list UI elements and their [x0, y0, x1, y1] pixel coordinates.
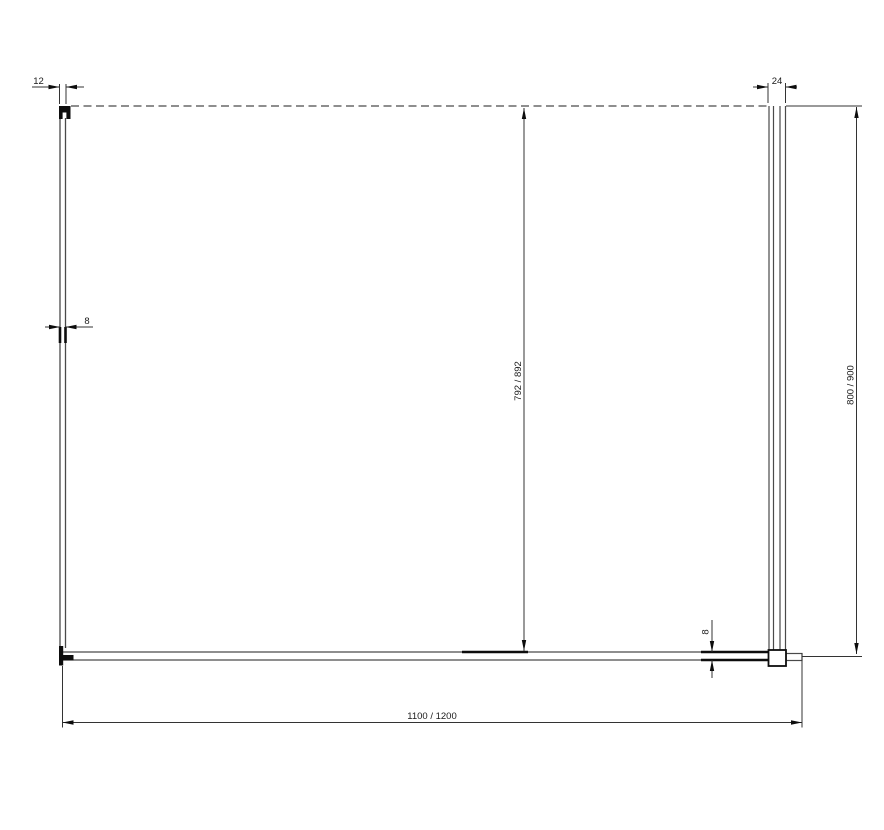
dim-glass-thickness-left-8: 8	[45, 316, 93, 329]
arrow-down-icon	[854, 643, 858, 654]
foot-block	[769, 650, 787, 666]
dim-label-24: 24	[772, 76, 783, 87]
arrow-left-icon	[66, 325, 77, 329]
dim-label-1100-1200: 1100 / 1200	[407, 711, 456, 722]
dim-overall-width-1100-1200: 1100 / 1200	[63, 711, 803, 725]
dim-glass-thickness-bottom-8: 8	[701, 620, 715, 678]
panel-thick-segments	[60, 327, 768, 660]
dim-label-8-left: 8	[84, 316, 89, 327]
arrow-right-icon	[757, 85, 768, 89]
arrow-up-icon	[522, 108, 526, 119]
arrow-right-icon	[49, 325, 60, 329]
extension-lines	[60, 83, 863, 728]
arrow-left-icon	[66, 85, 77, 89]
left-glass-panel	[60, 118, 66, 648]
arrow-left-icon	[63, 720, 74, 724]
dim-support-profile-24: 24	[753, 76, 797, 89]
dim-label-8-bottom: 8	[701, 629, 712, 634]
dim-wall-profile-12: 12	[32, 76, 84, 89]
arrow-down-icon	[710, 641, 714, 652]
drawing-page: 12 24 8 8 792 / 892	[0, 0, 884, 830]
bottom-glass-panel	[63, 652, 769, 660]
arrow-left-icon	[786, 85, 797, 89]
right-support-profile	[769, 106, 786, 650]
dim-label-800-900: 800 / 900	[846, 365, 857, 405]
arrow-right-icon	[49, 85, 60, 89]
arrow-up-icon	[710, 660, 714, 671]
arrow-down-icon	[522, 640, 526, 651]
arrow-up-icon	[854, 107, 858, 118]
wall-profile-cap	[59, 106, 71, 119]
dim-label-792-892: 792 / 892	[513, 361, 524, 401]
technical-drawing-canvas: 12 24 8 8 792 / 892	[0, 0, 884, 830]
foot-stub	[786, 654, 802, 661]
dim-overall-height-800-900: 800 / 900	[846, 107, 859, 654]
arrow-right-icon	[791, 720, 802, 724]
dim-label-12: 12	[33, 76, 44, 87]
corner-connector	[59, 646, 74, 666]
dim-glass-height-792-892: 792 / 892	[513, 108, 526, 651]
